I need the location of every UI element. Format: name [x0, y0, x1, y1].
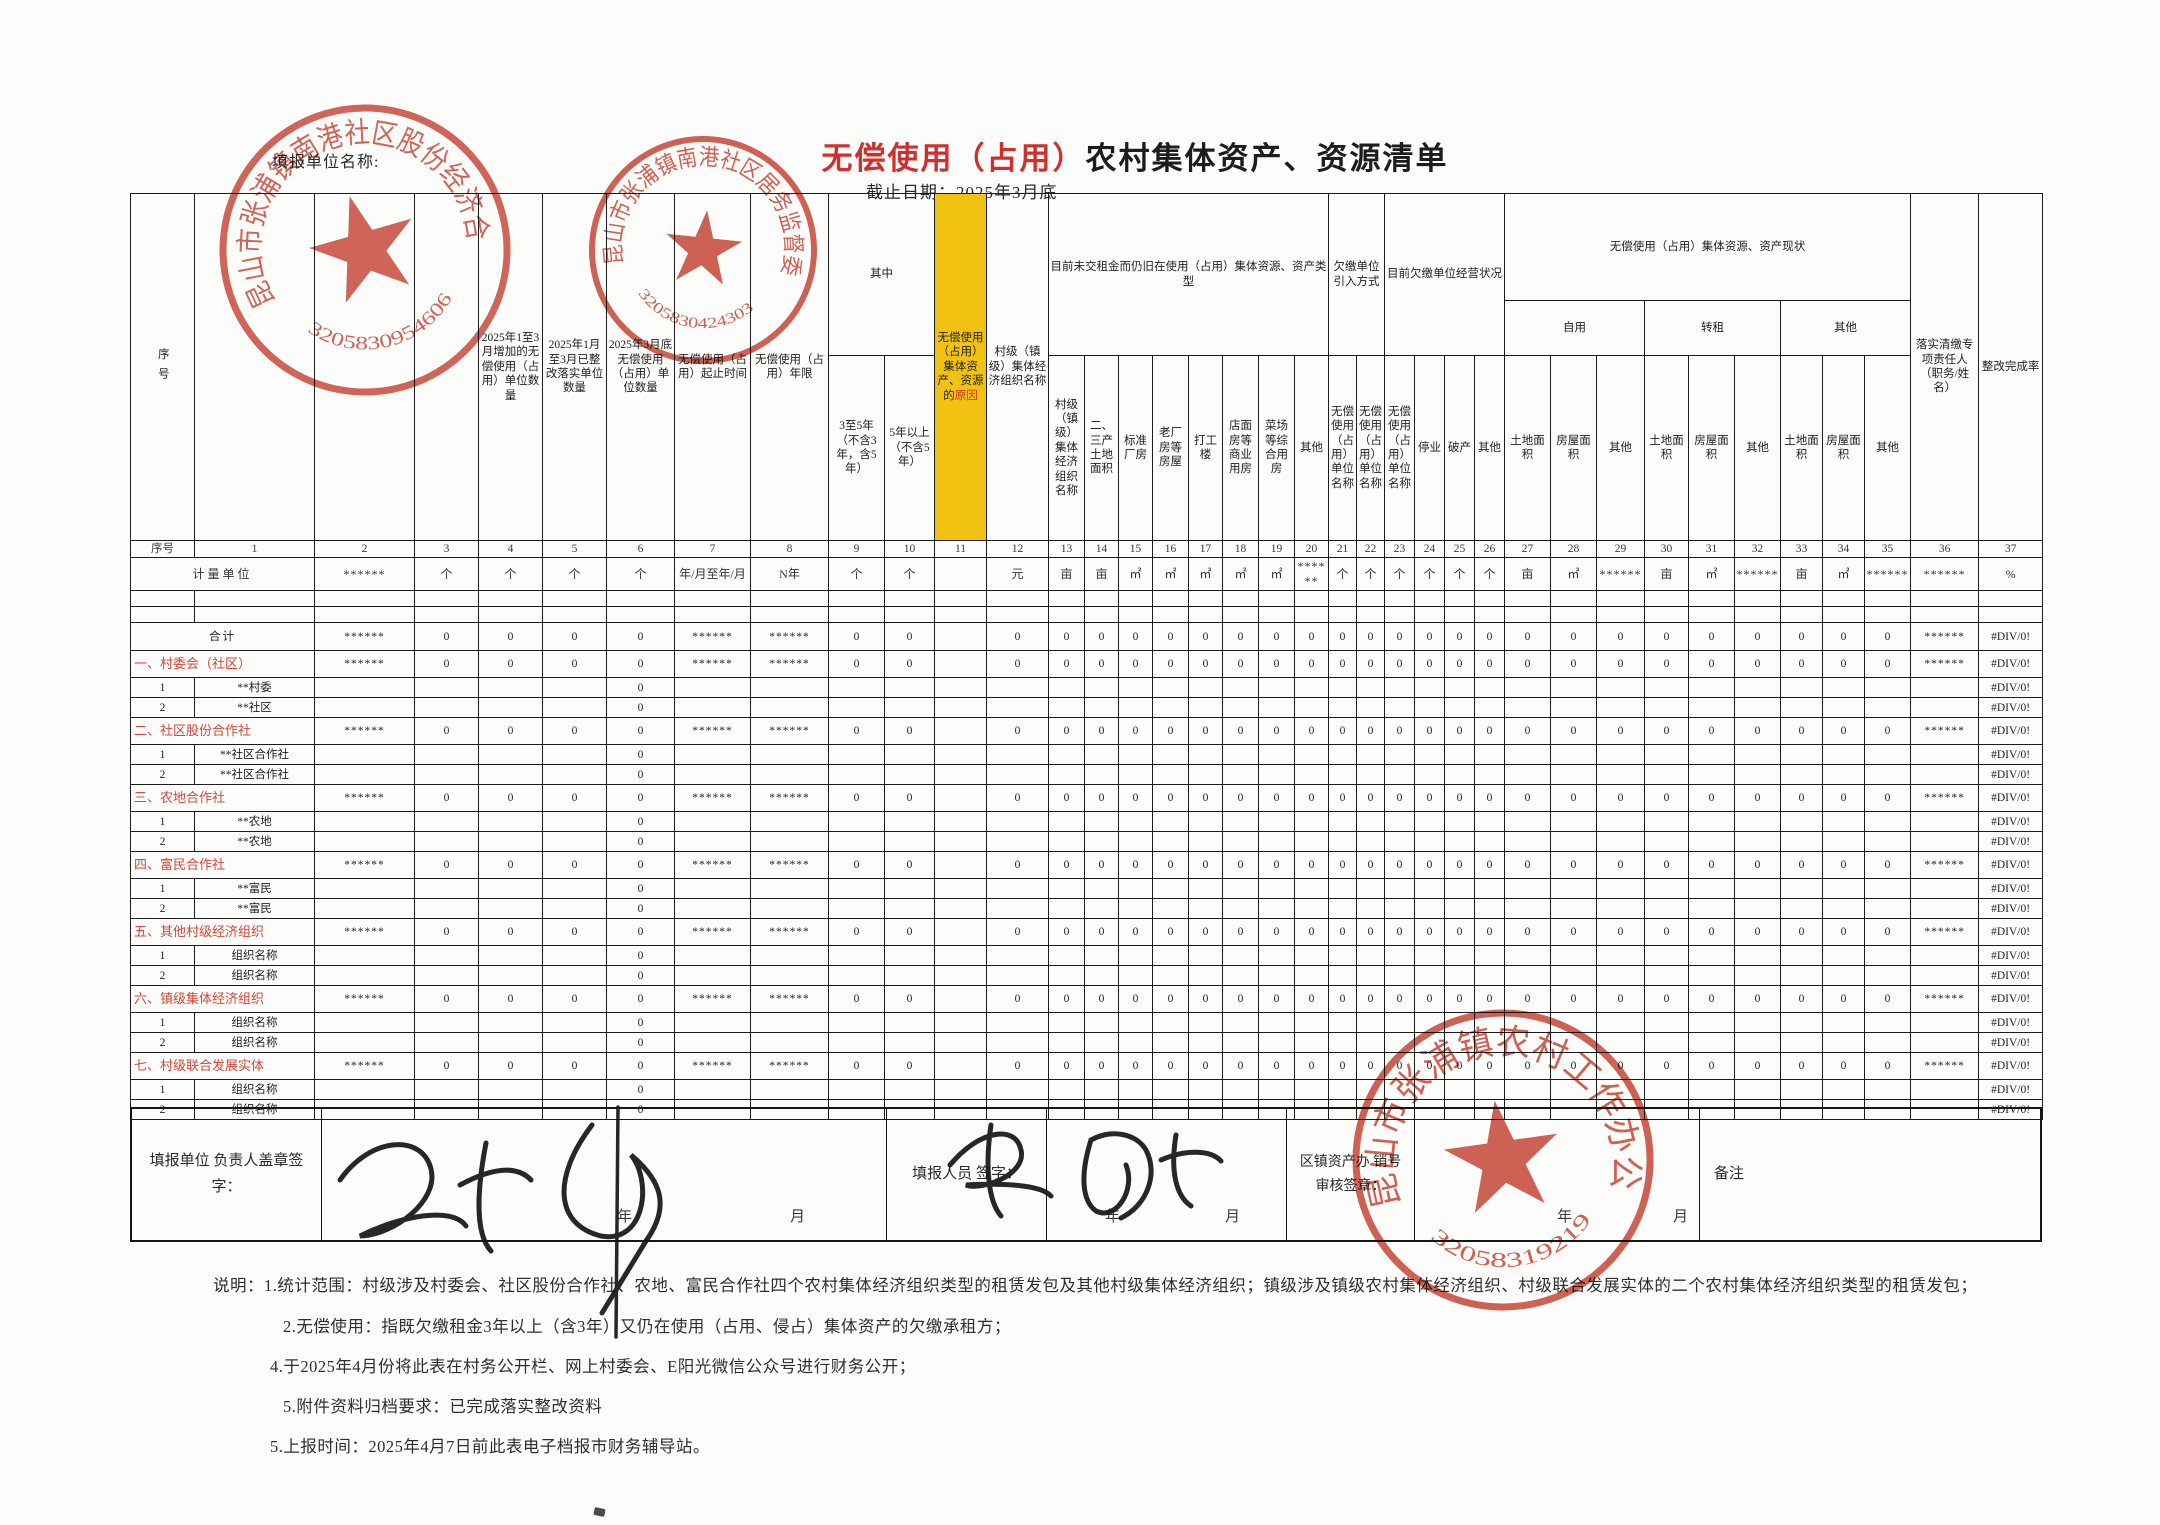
- data-cell: 0: [607, 745, 675, 765]
- blank-cell: [1645, 591, 1689, 607]
- blank-cell: [987, 591, 1049, 607]
- row-item: 2组织名称0#DIV/0!: [131, 1033, 2043, 1053]
- data-cell: ******: [751, 785, 829, 812]
- filler-sign-label: 填报人员 签字：: [887, 1109, 1047, 1240]
- data-cell: [935, 651, 987, 678]
- data-cell: [1597, 899, 1645, 919]
- unit-cell: ******: [1865, 558, 1911, 591]
- col-index: 14: [1085, 541, 1119, 558]
- col-index: 24: [1415, 541, 1445, 558]
- data-cell: [751, 1013, 829, 1033]
- blank-cell: [1781, 591, 1823, 607]
- data-cell: [1597, 946, 1645, 966]
- data-cell: 0: [607, 812, 675, 832]
- data-cell: [1329, 1013, 1357, 1033]
- data-cell: [543, 832, 607, 852]
- data-cell: 0: [1445, 651, 1475, 678]
- header-c11: 无偿使用（占用）集体资产、资源的原因: [935, 194, 987, 541]
- data-cell: [1823, 765, 1865, 785]
- data-cell: 0: [1781, 623, 1823, 651]
- header-c9: 3至5年（不含3年，含5年）: [829, 356, 885, 541]
- data-cell: 0: [607, 946, 675, 966]
- blank-cell: [751, 591, 829, 607]
- data-cell: [1119, 879, 1153, 899]
- data-cell: [1645, 765, 1689, 785]
- data-cell: [1475, 745, 1505, 765]
- data-cell: [675, 879, 751, 899]
- data-cell: 0: [1049, 852, 1085, 879]
- data-cell: [1295, 812, 1329, 832]
- data-cell: 0: [1551, 785, 1597, 812]
- data-cell: 0: [1445, 785, 1475, 812]
- scanned-form-page: 填报单位名称: 无偿使用（占用）农村集体资产、资源清单 截止日期：2025年3月…: [0, 0, 2160, 1525]
- col-index: 18: [1223, 541, 1259, 558]
- col-index: 26: [1475, 541, 1505, 558]
- data-cell: [315, 745, 415, 765]
- blank-cell: [829, 607, 885, 623]
- blank-cell: [1911, 591, 1979, 607]
- unit-cell: 个: [1385, 558, 1415, 591]
- data-cell: ******: [751, 852, 829, 879]
- blank-cell: [1085, 591, 1119, 607]
- section-label: 七、村级联合发展实体: [131, 1053, 315, 1080]
- data-cell: #DIV/0!: [1979, 966, 2043, 986]
- data-cell: [1911, 1013, 1979, 1033]
- org-name: **社区合作社: [195, 745, 315, 765]
- data-cell: 0: [1259, 986, 1295, 1013]
- unit-cell: 年/月至年/月: [675, 558, 751, 591]
- blank-cell: [415, 591, 479, 607]
- data-cell: #DIV/0!: [1979, 698, 2043, 718]
- blank-cell: [1445, 591, 1475, 607]
- blank-cell: [1295, 591, 1329, 607]
- data-cell: [1689, 879, 1735, 899]
- data-cell: [1645, 1013, 1689, 1033]
- blank-cell: [1911, 607, 1979, 623]
- data-cell: [1735, 899, 1781, 919]
- data-cell: [543, 812, 607, 832]
- unit-cell: 元: [987, 558, 1049, 591]
- blank-cell: [1475, 607, 1505, 623]
- data-cell: [1085, 832, 1119, 852]
- header-other3: 其他: [1865, 356, 1911, 541]
- data-cell: [1085, 812, 1119, 832]
- data-cell: 0: [415, 919, 479, 946]
- data-cell: 0: [1689, 785, 1735, 812]
- data-cell: [479, 966, 543, 986]
- data-cell: 0: [1475, 651, 1505, 678]
- data-cell: [751, 832, 829, 852]
- data-cell: 0: [1385, 986, 1415, 1013]
- blank-cell: [1735, 607, 1781, 623]
- data-cell: 0: [1475, 623, 1505, 651]
- col-index: 20: [1295, 541, 1329, 558]
- data-cell: 0: [1259, 919, 1295, 946]
- filler-sign-label-text: 填报人员 签字：: [912, 1162, 1021, 1188]
- row-number: 2: [131, 899, 195, 919]
- data-cell: [1189, 879, 1223, 899]
- data-cell: [1689, 946, 1735, 966]
- data-cell: [1295, 879, 1329, 899]
- col-index: 35: [1865, 541, 1911, 558]
- data-cell: [1295, 966, 1329, 986]
- header-g_selfuse: 自用: [1505, 301, 1645, 356]
- unit-cell: %: [1979, 558, 2043, 591]
- data-cell: [1645, 1080, 1689, 1100]
- data-cell: [1865, 765, 1911, 785]
- data-cell: 0: [1781, 1053, 1823, 1080]
- data-cell: 0: [1597, 718, 1645, 745]
- header-c7: 无偿使用（占用）起止时间: [675, 194, 751, 541]
- data-cell: [751, 946, 829, 966]
- data-cell: 0: [1189, 718, 1223, 745]
- data-cell: [1689, 745, 1735, 765]
- data-cell: [1781, 832, 1823, 852]
- blank-cell: [543, 607, 607, 623]
- data-cell: [1911, 765, 1979, 785]
- data-cell: [1475, 966, 1505, 986]
- blank-cell: [1505, 591, 1551, 607]
- data-cell: 0: [1689, 919, 1735, 946]
- unit-cell: ******: [1735, 558, 1781, 591]
- data-cell: 0: [1597, 623, 1645, 651]
- data-cell: 0: [1823, 718, 1865, 745]
- data-cell: 0: [1085, 718, 1119, 745]
- data-cell: [1223, 765, 1259, 785]
- data-cell: 0: [1085, 1053, 1119, 1080]
- data-cell: [1153, 765, 1189, 785]
- data-cell: [1865, 899, 1911, 919]
- row-item: 2组织名称0#DIV/0!: [131, 966, 2043, 986]
- data-cell: 0: [1781, 651, 1823, 678]
- col-index: 22: [1357, 541, 1385, 558]
- blank-cell: [1357, 591, 1385, 607]
- data-cell: [1475, 832, 1505, 852]
- header-c3: [415, 194, 479, 541]
- data-cell: [1689, 966, 1735, 986]
- data-cell: [1645, 698, 1689, 718]
- data-cell: 0: [829, 623, 885, 651]
- col-index: 36: [1911, 541, 1979, 558]
- data-cell: [935, 832, 987, 852]
- header-land2: 土地面积: [1645, 356, 1689, 541]
- data-cell: 0: [1781, 785, 1823, 812]
- data-cell: [1049, 812, 1085, 832]
- data-cell: 0: [607, 879, 675, 899]
- data-cell: 0: [415, 1053, 479, 1080]
- data-cell: [1223, 1013, 1259, 1033]
- header-house1: 房屋面积: [1551, 356, 1597, 541]
- row-item: 1**农地0#DIV/0!: [131, 812, 2043, 832]
- data-cell: [935, 785, 987, 812]
- data-cell: 0: [1329, 986, 1357, 1013]
- org-name: 组织名称: [195, 946, 315, 966]
- data-cell: [935, 678, 987, 698]
- row-item: 1**富民0#DIV/0!: [131, 879, 2043, 899]
- blank-cell: [1153, 591, 1189, 607]
- data-cell: 0: [1295, 718, 1329, 745]
- data-cell: [1385, 966, 1415, 986]
- data-cell: [987, 1033, 1049, 1053]
- data-cell: [1357, 879, 1385, 899]
- unit-cell: 个: [1445, 558, 1475, 591]
- data-cell: [1505, 832, 1551, 852]
- data-cell: 0: [1505, 1053, 1551, 1080]
- data-cell: [1385, 946, 1415, 966]
- blank-cell: [195, 591, 315, 607]
- data-cell: [1551, 765, 1597, 785]
- data-cell: 0: [1505, 785, 1551, 812]
- blank-cell: [1153, 607, 1189, 623]
- data-cell: 0: [987, 623, 1049, 651]
- data-cell: [829, 879, 885, 899]
- unit-cell: 亩: [1085, 558, 1119, 591]
- data-cell: [415, 745, 479, 765]
- data-cell: 0: [1385, 718, 1415, 745]
- data-cell: [1445, 899, 1475, 919]
- data-cell: [1911, 1080, 1979, 1100]
- data-cell: #DIV/0!: [1979, 765, 2043, 785]
- data-cell: [1597, 1013, 1645, 1033]
- data-cell: [543, 899, 607, 919]
- data-cell: 0: [1223, 852, 1259, 879]
- data-cell: [1085, 946, 1119, 966]
- header-c22: 无偿使用（占用）单位名称: [1357, 356, 1385, 541]
- unit-cell: 亩: [1049, 558, 1085, 591]
- header-g_types: 目前未交租金而仍旧在使用（占用）集体资源、资产类型: [1049, 194, 1329, 356]
- unit-cell: N年: [751, 558, 829, 591]
- data-cell: [1735, 678, 1781, 698]
- data-cell: [935, 698, 987, 718]
- header-other2: 其他: [1735, 356, 1781, 541]
- data-cell: [1823, 745, 1865, 765]
- data-cell: [1597, 1033, 1645, 1053]
- data-cell: 0: [607, 1053, 675, 1080]
- org-name: 组织名称: [195, 1033, 315, 1053]
- data-cell: 0: [1551, 651, 1597, 678]
- data-cell: [543, 678, 607, 698]
- data-cell: [1357, 745, 1385, 765]
- data-cell: [1823, 966, 1865, 986]
- data-cell: [1735, 1013, 1781, 1033]
- data-cell: [1223, 812, 1259, 832]
- data-cell: [1415, 966, 1445, 986]
- data-cell: [1597, 698, 1645, 718]
- header-c15: 标准厂房: [1119, 356, 1153, 541]
- blank-cell: [1597, 591, 1645, 607]
- data-cell: [885, 1033, 935, 1053]
- data-cell: [1781, 879, 1823, 899]
- data-cell: [479, 946, 543, 966]
- month-label: 月: [790, 1205, 805, 1231]
- data-cell: [1475, 812, 1505, 832]
- data-cell: ******: [675, 651, 751, 678]
- data-cell: [415, 966, 479, 986]
- data-cell: [1153, 698, 1189, 718]
- org-name: **村委: [195, 678, 315, 698]
- data-cell: 0: [829, 718, 885, 745]
- row-number: 1: [131, 879, 195, 899]
- data-cell: 0: [607, 623, 675, 651]
- data-cell: [751, 1033, 829, 1053]
- data-cell: 0: [1823, 919, 1865, 946]
- blank-row: [131, 607, 2043, 623]
- blank-cell: [315, 607, 415, 623]
- data-cell: [1295, 899, 1329, 919]
- data-cell: [1259, 899, 1295, 919]
- blank-cell: [1645, 607, 1689, 623]
- data-cell: 0: [885, 852, 935, 879]
- unit-cell: 亩: [1645, 558, 1689, 591]
- row-section: 三、农地合作社******0000************00000000000…: [131, 785, 2043, 812]
- data-cell: [1505, 678, 1551, 698]
- data-cell: [1823, 1013, 1865, 1033]
- header-corner: 序号: [131, 194, 195, 541]
- data-cell: [1475, 1033, 1505, 1053]
- data-cell: [987, 946, 1049, 966]
- data-cell: [1153, 1013, 1189, 1033]
- data-cell: 0: [1223, 623, 1259, 651]
- data-cell: 0: [415, 785, 479, 812]
- data-cell: 0: [1597, 852, 1645, 879]
- data-cell: #DIV/0!: [1979, 785, 2043, 812]
- data-cell: 0: [1445, 1053, 1475, 1080]
- org-name: 组织名称: [195, 1013, 315, 1033]
- data-cell: [675, 1080, 751, 1100]
- data-cell: 0: [1645, 986, 1689, 1013]
- data-cell: [829, 1033, 885, 1053]
- data-cell: 0: [1329, 785, 1357, 812]
- data-cell: 0: [1735, 785, 1781, 812]
- data-cell: 0: [1865, 651, 1911, 678]
- data-cell: [935, 1053, 987, 1080]
- data-cell: 0: [1295, 986, 1329, 1013]
- col-index: 15: [1119, 541, 1153, 558]
- data-cell: 0: [1415, 785, 1445, 812]
- page-title: 无偿使用（占用）农村集体资产、资源清单: [110, 133, 2160, 178]
- data-cell: [1295, 698, 1329, 718]
- data-cell: ******: [1911, 718, 1979, 745]
- data-cell: [1911, 745, 1979, 765]
- col-index: 29: [1597, 541, 1645, 558]
- unit-head-sign-label: 填报单位 负责人盖章签字：: [132, 1109, 322, 1240]
- data-cell: [1357, 899, 1385, 919]
- data-cell: [1119, 678, 1153, 698]
- data-cell: [1781, 678, 1823, 698]
- data-cell: [829, 678, 885, 698]
- note-line-4: 5.附件资料归档要求：已完成落实整改资料: [283, 1393, 602, 1417]
- data-cell: [1357, 678, 1385, 698]
- data-cell: 0: [479, 623, 543, 651]
- data-cell: [987, 812, 1049, 832]
- unit-cell: 个: [479, 558, 543, 591]
- header-g_status: 目前欠缴单位经营状况: [1385, 194, 1505, 356]
- header-c11-reason: 原因: [955, 390, 978, 402]
- data-cell: 0: [1475, 785, 1505, 812]
- data-cell: ******: [675, 986, 751, 1013]
- data-cell: [935, 718, 987, 745]
- data-cell: [675, 765, 751, 785]
- data-cell: #DIV/0!: [1979, 879, 2043, 899]
- data-cell: [829, 765, 885, 785]
- data-cell: [1781, 1013, 1823, 1033]
- data-cell: 0: [1865, 919, 1911, 946]
- data-cell: [1259, 812, 1295, 832]
- data-cell: [1385, 698, 1415, 718]
- data-cell: [315, 765, 415, 785]
- data-cell: [415, 946, 479, 966]
- data-cell: [1445, 698, 1475, 718]
- data-cell: [1049, 1033, 1085, 1053]
- data-cell: [315, 946, 415, 966]
- data-cell: [935, 1033, 987, 1053]
- col-index: 25: [1445, 541, 1475, 558]
- header-c18: 店面房等商业用房: [1223, 356, 1259, 541]
- data-cell: [1551, 1080, 1597, 1100]
- data-cell: [751, 899, 829, 919]
- data-cell: ******: [315, 986, 415, 1013]
- data-cell: [1735, 832, 1781, 852]
- data-cell: [1189, 1033, 1223, 1053]
- data-cell: [1597, 879, 1645, 899]
- data-cell: [1597, 765, 1645, 785]
- data-cell: [1597, 678, 1645, 698]
- data-cell: 0: [607, 718, 675, 745]
- data-cell: 0: [1551, 1053, 1597, 1080]
- data-cell: [1357, 812, 1385, 832]
- data-cell: [1911, 812, 1979, 832]
- data-cell: [1865, 1033, 1911, 1053]
- header-c14: 二、三产土地面积: [1085, 356, 1119, 541]
- blank-cell: [1329, 607, 1357, 623]
- data-cell: 0: [1597, 785, 1645, 812]
- month-label: 月: [1225, 1205, 1240, 1231]
- data-cell: [675, 745, 751, 765]
- section-label: 四、富民合作社: [131, 852, 315, 879]
- data-cell: [1329, 1033, 1357, 1053]
- col-index: 2: [315, 541, 415, 558]
- data-cell: 0: [1357, 718, 1385, 745]
- data-cell: [1119, 745, 1153, 765]
- data-cell: 0: [1865, 986, 1911, 1013]
- data-cell: [1475, 899, 1505, 919]
- data-cell: [1357, 832, 1385, 852]
- data-cell: [1085, 899, 1119, 919]
- data-cell: 0: [1645, 852, 1689, 879]
- data-cell: 0: [829, 785, 885, 812]
- data-cell: [1475, 1013, 1505, 1033]
- data-cell: ******: [1911, 623, 1979, 651]
- data-cell: 0: [1153, 651, 1189, 678]
- section-label: 二、社区股份合作社: [131, 718, 315, 745]
- data-cell: [1505, 812, 1551, 832]
- data-cell: [1645, 879, 1689, 899]
- data-cell: [1823, 946, 1865, 966]
- data-cell: [935, 1080, 987, 1100]
- data-cell: ******: [675, 718, 751, 745]
- data-cell: [1357, 966, 1385, 986]
- data-cell: 0: [1645, 651, 1689, 678]
- header-other1: 其他: [1597, 356, 1645, 541]
- data-cell: 0: [479, 651, 543, 678]
- data-cell: [1329, 678, 1357, 698]
- data-cell: ******: [1911, 919, 1979, 946]
- blank-cell: [1689, 607, 1735, 623]
- data-cell: 0: [1689, 1053, 1735, 1080]
- data-cell: [1551, 966, 1597, 986]
- data-cell: [1357, 765, 1385, 785]
- unit-cell: 个: [885, 558, 935, 591]
